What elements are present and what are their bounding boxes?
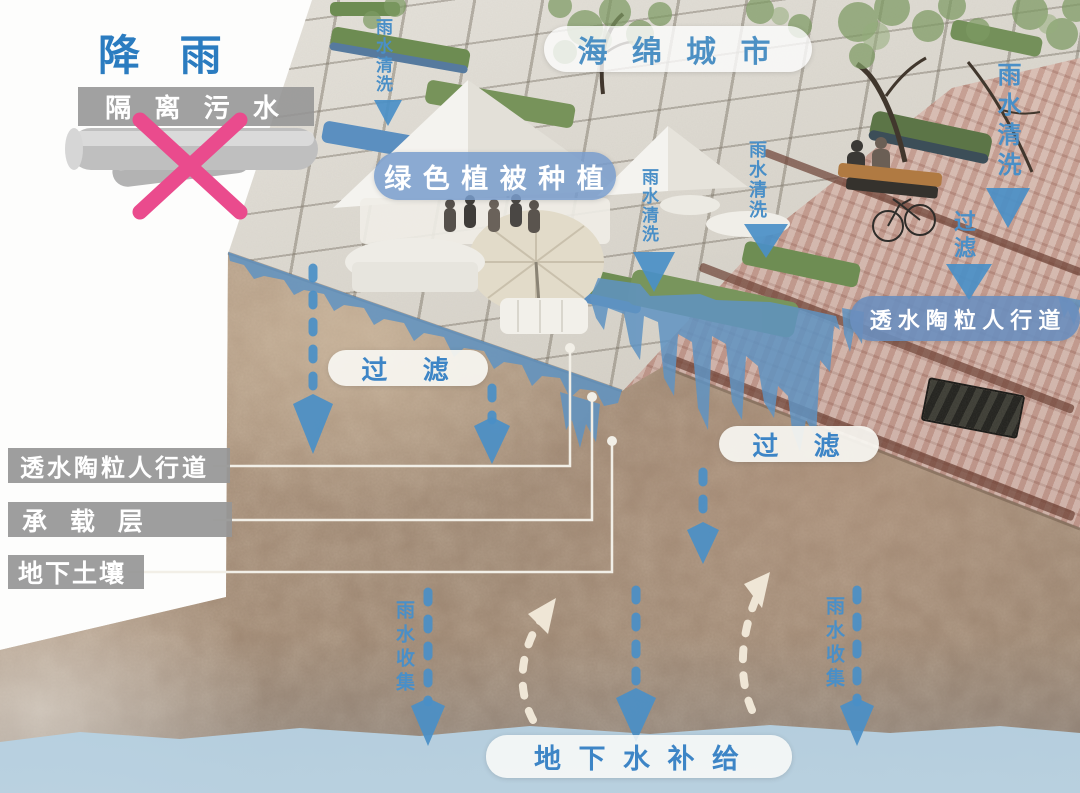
- sponge-city-diagram: 降 雨 隔 离 污 水 海 绵 城 市 绿 色 植 被 种 植 透 水 陶 粒 …: [0, 0, 1080, 793]
- rain-wash-label-4: 雨水清洗: [994, 62, 1018, 182]
- rain-collect-label-left: 雨水收集: [394, 600, 413, 696]
- groundwater-recharge-label: 地 下 水 补 给: [486, 735, 792, 778]
- rain-wash-label-1: 雨水清洗: [374, 18, 391, 94]
- layer-label-bearing: 承 载 层: [8, 502, 232, 537]
- rain-wash-label-2: 雨水清洗: [640, 168, 657, 244]
- up-arrowhead-icon: [528, 572, 770, 634]
- pipe-graphic: [40, 100, 340, 230]
- sponge-city-title: 海 绵 城 市: [544, 26, 812, 72]
- filter-label-right: 过 滤: [719, 426, 879, 462]
- filter-label-left: 过 滤: [328, 350, 488, 386]
- rainfall-title: 降 雨: [98, 22, 236, 83]
- layer-label-permeable-walkway: 透水陶粒人行道: [8, 448, 230, 483]
- green-planting-label: 绿 色 植 被 种 植: [374, 152, 616, 200]
- rain-collect-label-right: 雨水收集: [824, 596, 843, 692]
- rain-wash-label-3: 雨水清洗: [748, 140, 766, 220]
- filter-label-right-vertical: 过滤: [952, 210, 974, 262]
- layer-label-subsoil: 地下土壤: [8, 555, 144, 589]
- permeable-walkway-label-right: 透 水 陶 粒 人 行 道: [850, 296, 1080, 341]
